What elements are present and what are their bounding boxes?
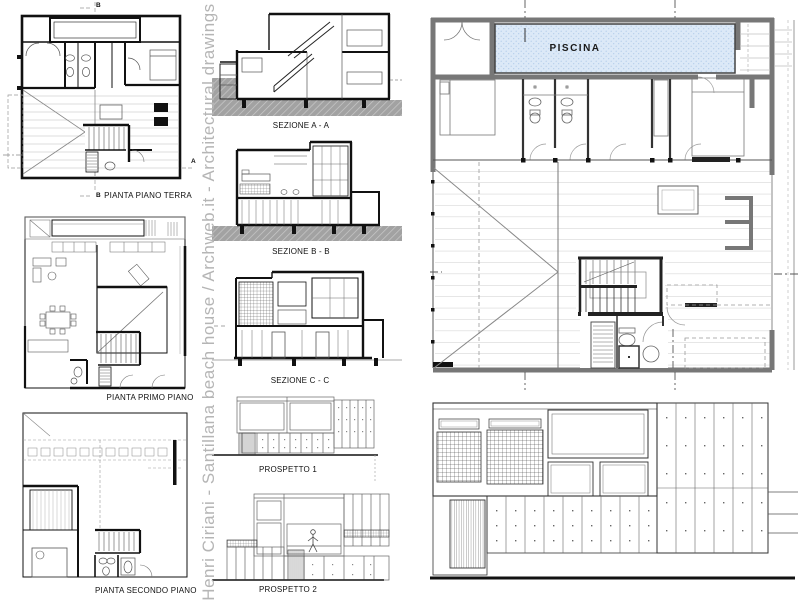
plan-secondo-label: PIANTA SECONDO PIANO — [95, 586, 195, 595]
plan-primo-label: PIANTA PRIMO PIANO — [100, 393, 200, 402]
sezione-c-c-drawing — [212, 262, 402, 384]
section-mark-a-side: A — [191, 158, 196, 165]
section-mark-b-bottom: B — [96, 192, 101, 199]
main-elevation-drawing — [430, 392, 800, 587]
plan-secondo-piano-drawing — [0, 398, 212, 584]
plan-terra-label: PIANTA PIANO TERRA — [98, 191, 198, 200]
drawing-sheet: PIANTA PIANO TERRA PIANTA PRIMO PIANO PI… — [0, 0, 800, 600]
main-floor-plan-drawing — [430, 0, 800, 392]
prospetto-1-label: PROSPETTO 1 — [238, 465, 338, 474]
prospetto-2-drawing — [212, 486, 402, 596]
plan-piano-terra-drawing — [0, 0, 212, 210]
section-a-label: SEZIONE A - A — [251, 121, 351, 130]
credit-vertical-text: Henri Ciriani - Santillana beach house /… — [199, 2, 221, 600]
prospetto-2-label: PROSPETTO 2 — [238, 585, 338, 594]
plan-primo-piano-drawing — [0, 206, 212, 398]
section-b-label: SEZIONE B - B — [251, 247, 351, 256]
sezione-a-a-drawing — [212, 0, 402, 132]
pool-label: PISCINA — [535, 43, 615, 54]
section-mark-b-top: B — [96, 2, 101, 9]
sezione-b-b-drawing — [212, 134, 402, 258]
section-c-label: SEZIONE C - C — [250, 376, 350, 385]
